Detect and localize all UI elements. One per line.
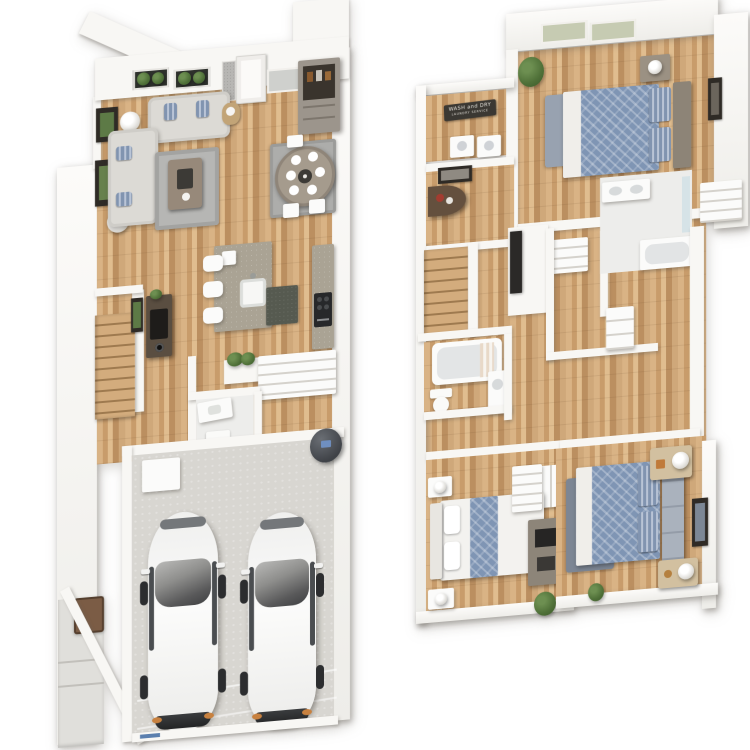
- first-floor-plan: [57, 0, 357, 750]
- master-window-1: [541, 20, 587, 44]
- second-floor-plan: WASH and DRY LAUNDRY SERVICE: [416, 0, 750, 640]
- hall-wall-v1: [546, 228, 554, 361]
- staircase-2: [424, 246, 468, 336]
- nook-art: [438, 165, 472, 184]
- bedroom2-nightstand-2: [428, 588, 454, 610]
- island-sink: [240, 278, 266, 308]
- master-bed: [555, 77, 693, 183]
- bar-cabinet: [298, 57, 340, 135]
- bedroom2-plant: [534, 591, 556, 617]
- bath-wall-right: [504, 334, 512, 421]
- master-nightstand-1: [640, 54, 670, 83]
- console-table: [146, 294, 172, 358]
- hall-closet: [512, 464, 542, 513]
- car-left: [138, 504, 228, 740]
- bedroom2-nightstand-1: [428, 476, 452, 498]
- walk-in-closet: [700, 179, 742, 223]
- dining-chair-1: [287, 134, 303, 147]
- sofa: [108, 127, 158, 227]
- shower-glass: [682, 176, 690, 233]
- linen-closet-1: [552, 237, 588, 274]
- stair-wall-right-2: [468, 242, 478, 337]
- white-dresser: [606, 306, 634, 350]
- bedroom2-headboard: [430, 503, 442, 580]
- bedroom3-wall-art: [692, 497, 708, 546]
- tv-cabinet: [510, 231, 522, 294]
- leaning-art: [131, 297, 143, 332]
- bar-stool-1: [203, 254, 223, 272]
- bedroom3-nightstand-2: [658, 557, 698, 588]
- bedroom3-nightstand-1: [650, 445, 692, 481]
- washer: [450, 135, 474, 158]
- garage-wall-left: [122, 445, 132, 742]
- loveseat: [148, 91, 230, 144]
- dryer: [477, 135, 501, 158]
- kitchen-mat: [266, 285, 298, 326]
- master-headboard: [673, 81, 691, 169]
- car-right: [238, 504, 326, 736]
- master-bath-vanity: [602, 179, 650, 203]
- plant-window-1: [133, 67, 169, 90]
- coffee-table: [168, 157, 202, 210]
- dining-chair-2: [283, 203, 299, 218]
- wall-right-mid: [690, 226, 704, 447]
- master-window-2: [590, 19, 636, 43]
- staircase: [95, 312, 135, 419]
- basket: [222, 102, 240, 126]
- bar-stool-3: [203, 306, 223, 324]
- pantry-shelves: [258, 350, 336, 401]
- master-wall-art: [708, 77, 722, 120]
- master-shower-tub: [640, 236, 694, 271]
- bar-stool-2: [203, 280, 223, 298]
- front-door: [236, 54, 266, 105]
- kitchen-counter: [312, 244, 334, 350]
- range: [314, 292, 332, 328]
- floorplan-render: WASH and DRY LAUNDRY SERVICE: [0, 0, 750, 750]
- dining-chair-3: [309, 199, 325, 214]
- garage-cabinet: [142, 457, 180, 492]
- plant-window-2: [174, 67, 210, 90]
